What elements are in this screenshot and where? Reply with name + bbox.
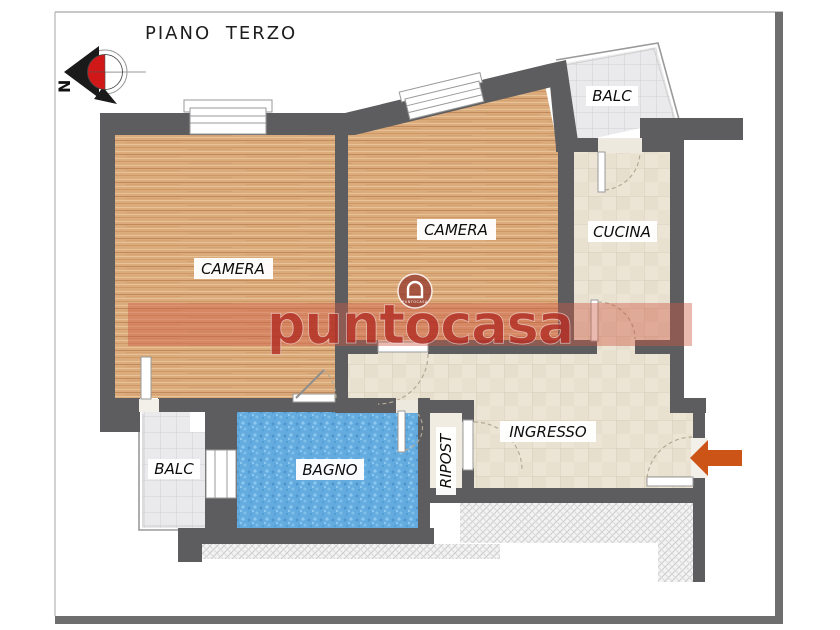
camera-left-window bbox=[184, 100, 272, 134]
label-cucina: CUCINA bbox=[588, 221, 657, 242]
label-balc-bottom: BALC bbox=[148, 459, 200, 479]
svg-text:BALC: BALC bbox=[154, 460, 194, 478]
label-balc-top: BALC bbox=[586, 86, 638, 106]
svg-text:INGRESSO: INGRESSO bbox=[509, 423, 587, 441]
bagno-window bbox=[206, 450, 236, 498]
svg-text:CUCINA: CUCINA bbox=[593, 223, 651, 241]
floorplan-page: PIANO TERZO N bbox=[0, 0, 840, 630]
label-camera-mid: CAMERA bbox=[417, 219, 496, 240]
label-ripost: RIPOST bbox=[436, 427, 456, 495]
north-compass-icon: N bbox=[55, 46, 146, 104]
page-title: PIANO TERZO bbox=[145, 23, 297, 44]
label-camera-left: CAMERA bbox=[194, 258, 273, 279]
ingresso-floor bbox=[462, 400, 693, 488]
svg-text:CAMERA: CAMERA bbox=[424, 221, 488, 239]
svg-text:BAGNO: BAGNO bbox=[302, 461, 357, 479]
svg-text:CAMERA: CAMERA bbox=[201, 260, 265, 278]
floorplan-drawing: PIANO TERZO N bbox=[0, 0, 840, 630]
svg-text:RIPOST: RIPOST bbox=[437, 432, 455, 488]
compass-north-letter: N bbox=[55, 80, 74, 93]
label-ingresso: INGRESSO bbox=[500, 421, 596, 442]
svg-text:BALC: BALC bbox=[592, 87, 632, 105]
hallway-floor bbox=[348, 354, 672, 400]
label-bagno: BAGNO bbox=[296, 459, 364, 480]
watermark-brand-text: puntocasa bbox=[267, 293, 573, 356]
